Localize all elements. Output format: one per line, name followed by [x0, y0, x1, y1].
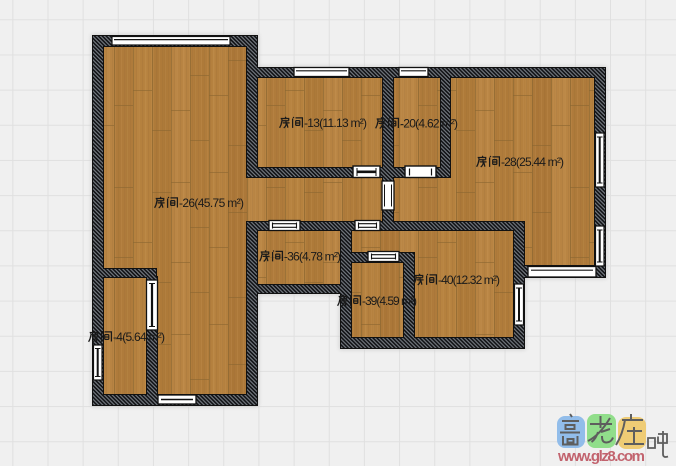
svg-text:-28(25.44 m²): -28(25.44 m²) — [501, 155, 564, 169]
svg-text:-4(5.64 m²): -4(5.64 m²) — [113, 330, 165, 344]
svg-text:-20(4.62 m²): -20(4.62 m²) — [400, 117, 458, 131]
svg-text:-40(12.32 m²): -40(12.32 m²) — [438, 273, 500, 287]
svg-text:-13(11.13 m²): -13(11.13 m²) — [304, 116, 367, 130]
svg-text:-39(4.59 m²): -39(4.59 m²) — [362, 294, 417, 308]
svg-text:www.glz8.com: www.glz8.com — [557, 448, 645, 465]
svg-text:-36(4.78 m²): -36(4.78 m²) — [284, 250, 341, 264]
svg-text:-26(45.75 m²): -26(45.75 m²) — [179, 196, 244, 210]
